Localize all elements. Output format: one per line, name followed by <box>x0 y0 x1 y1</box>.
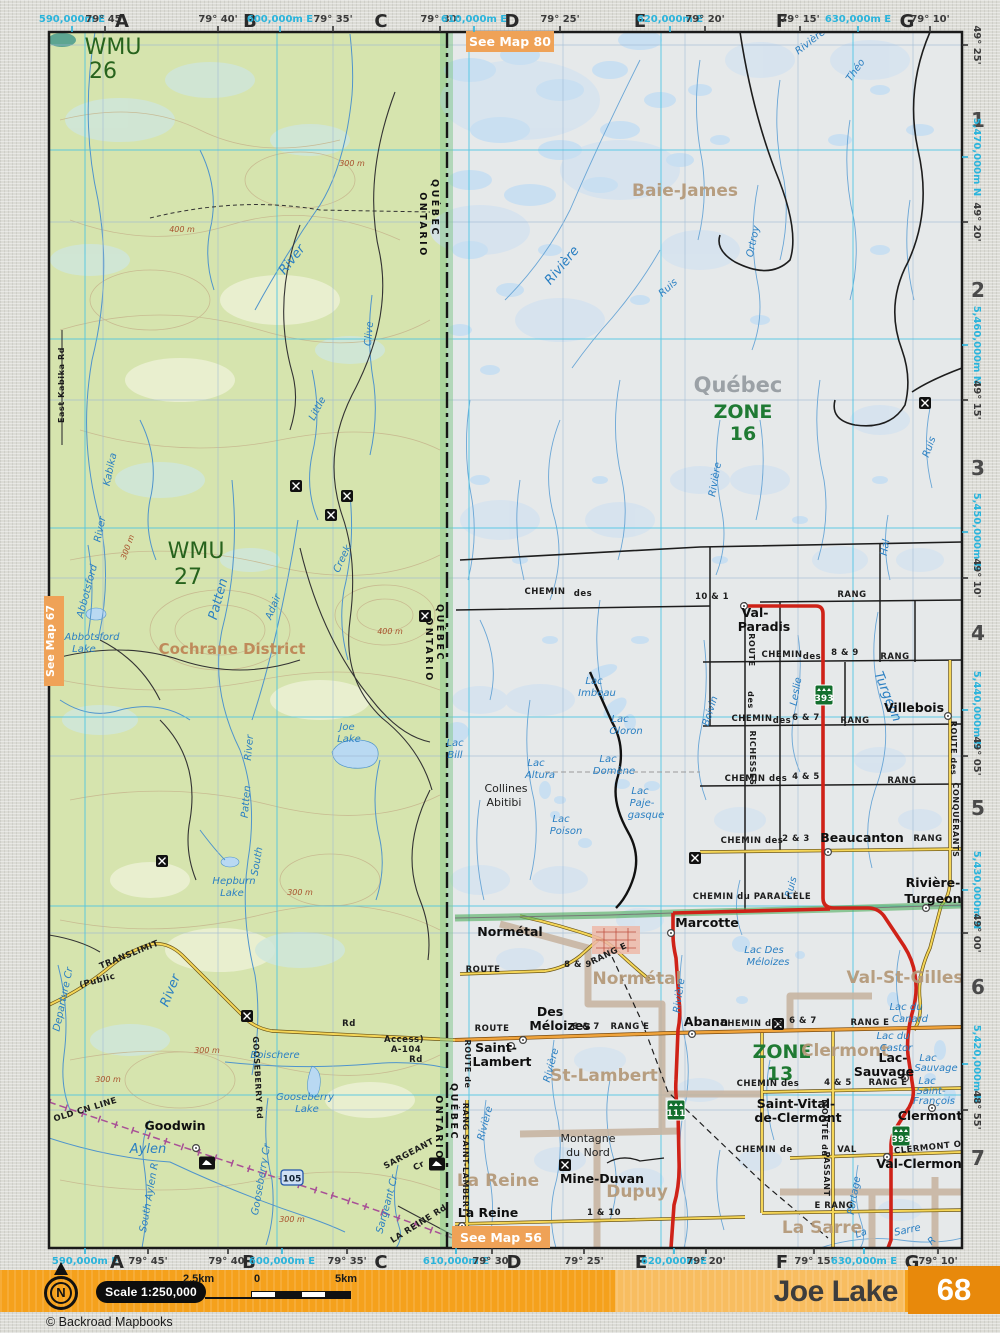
map-label: 6 & 7 <box>792 713 820 723</box>
map-label: Lac <box>631 786 649 797</box>
map-label: 79° 25' <box>564 1256 603 1267</box>
map-label: Turgeon <box>904 891 961 906</box>
map-label: WMU <box>85 35 142 60</box>
map-label: CHEMIN des <box>721 1019 784 1029</box>
map-label: Marcotte <box>675 915 738 930</box>
map-label: des <box>746 691 755 709</box>
map-label: 48° 55' <box>971 1090 982 1129</box>
scale-tick-5: 5km <box>335 1273 357 1285</box>
map-label: Lac- <box>879 1050 908 1065</box>
map-label: Bill <box>447 750 462 761</box>
map-label: ONTARIO <box>423 617 434 683</box>
scale-tick-25: 2.5km <box>183 1273 214 1285</box>
map-label: Normétal <box>477 924 542 939</box>
map-label: Lambert <box>473 1054 532 1069</box>
map-label: RANG E <box>851 1018 890 1028</box>
map-label: C <box>374 11 387 32</box>
map-label: River <box>243 734 256 762</box>
map-label: 49° 00' <box>971 913 982 952</box>
map-label: CONQUÉRANTS <box>951 783 962 858</box>
map-label: A <box>115 11 129 32</box>
map-label: 2 & 3 <box>782 834 810 844</box>
map-label: ROUTE <box>466 965 501 975</box>
map-label: 6 <box>971 975 985 999</box>
map-label: Cochrane District <box>159 640 306 658</box>
map-label: ZONE <box>714 401 773 423</box>
see-map-top: See Map 80 <box>466 31 554 52</box>
map-label: CHEMIN des <box>737 1079 800 1089</box>
map-label: 3 <box>971 456 985 480</box>
map-label: Imbeau <box>578 688 616 699</box>
map-label: Domène <box>593 765 635 777</box>
map-label: Aylen <box>129 1142 166 1157</box>
map-label: Poison <box>550 826 583 837</box>
map-label: gasque <box>628 810 665 821</box>
map-label: 79° 35' <box>313 14 352 25</box>
scale-bar-segment <box>251 1291 276 1298</box>
map-label: MONTÉE du <box>820 1099 831 1156</box>
map-label: Gooseberry <box>276 1092 335 1103</box>
map-label: 26 <box>89 59 117 84</box>
map-label: QUÉBEC <box>429 179 441 237</box>
map-label: Clermont <box>801 1041 889 1061</box>
map-label: QUÉBEC <box>434 604 446 662</box>
map-label: Goodwin <box>144 1118 205 1133</box>
map-label: des <box>803 652 821 662</box>
map-label: 79° 25' <box>540 14 579 25</box>
map-label: 400 m <box>377 627 403 636</box>
map-label: 8 & 9 <box>831 648 859 658</box>
map-label: Lac <box>585 676 603 687</box>
svg-text:393: 393 <box>892 1135 911 1145</box>
map-label: Québec <box>694 373 783 397</box>
map-label: CHEMIN <box>525 587 566 597</box>
map-label: 16 <box>730 423 756 445</box>
map-label: 79° 40' <box>198 14 237 25</box>
scale-bar-segment <box>301 1291 326 1298</box>
map-label: Paje- <box>630 798 655 809</box>
map-label: 7 <box>971 1146 985 1170</box>
map-label: Montagne <box>561 1132 616 1145</box>
map-page: 393111393105 WMU26WMU27Cochrane District… <box>0 0 1000 1333</box>
map-label: QUÉBEC <box>448 1083 460 1141</box>
see-map-left-label: See Map 67 <box>44 605 57 677</box>
see-map-bottom: See Map 56 <box>452 1226 550 1248</box>
map-label: 300 m <box>287 888 313 897</box>
map-label: 49° 25' <box>971 25 982 64</box>
map-label: ROUTE <box>747 633 756 666</box>
see-map-left: See Map 67 <box>44 596 64 686</box>
map-label: Sauvage <box>854 1064 914 1079</box>
map-label: Lac <box>611 714 629 725</box>
copyright: © Backroad Mapbooks <box>46 1315 173 1329</box>
map-label: La Sarre <box>782 1218 862 1238</box>
map-label: 600,000m E <box>247 14 313 25</box>
map-label: 49° 05' <box>971 736 982 775</box>
map-label: CHEMIN <box>732 714 773 724</box>
map-label: 49° 20' <box>971 202 982 241</box>
map-label: RANG SAINT-LAMBERT <box>461 1103 470 1214</box>
map-label: VAL <box>837 1145 857 1155</box>
map-label: Oloron <box>609 726 642 737</box>
map-label: 630,000m E <box>831 1256 897 1267</box>
map-label: Val-Clermont <box>876 1156 968 1171</box>
map-label: des <box>773 716 791 726</box>
map-label: Lake <box>72 644 96 655</box>
map-label: Villebois <box>884 700 944 715</box>
map-label: du Nord <box>566 1146 610 1159</box>
map-label: 49° 10' <box>971 558 982 597</box>
svg-text:111: 111 <box>667 1109 686 1119</box>
map-label: Lake <box>220 888 244 899</box>
map-label: 6 & 7 <box>789 1016 817 1026</box>
map-label: 5,470,000m N <box>971 118 982 197</box>
map-label: 10 & 1 <box>695 592 729 602</box>
map-label: Saint- <box>475 1040 517 1055</box>
map-label: 300 m <box>194 1046 220 1055</box>
map-label: 79° 45' <box>128 1256 167 1267</box>
map-label: 49° 15' <box>971 380 982 419</box>
map-label: East Kabika Rd <box>57 347 66 423</box>
map-label: 6 & 7 <box>572 1022 600 1032</box>
map-label: Canard <box>892 1014 929 1025</box>
map-label: Lac <box>446 738 464 749</box>
compass-letter: N <box>50 1282 72 1304</box>
scale-bar-segment <box>276 1291 301 1298</box>
see-map-top-label: See Map 80 <box>469 34 551 49</box>
map-label: WMU <box>168 539 225 564</box>
map-label: RANG <box>913 834 942 844</box>
map-label: 4 <box>971 621 985 645</box>
map-label: A-104 <box>391 1045 421 1055</box>
map-label: 8 & 9 <box>564 960 592 970</box>
map-label: Lake <box>295 1104 319 1115</box>
map-label: ONTARIO <box>433 1095 444 1161</box>
map-label: 1 & 10 <box>587 1208 621 1218</box>
map-label: Beaucanton <box>820 830 904 845</box>
map-label: RANG <box>840 716 869 726</box>
map-label: Des <box>537 1004 563 1019</box>
map-label: François <box>913 1096 955 1107</box>
map-label: 600,000m E <box>249 1256 315 1267</box>
map-label: Clermont <box>898 1108 963 1123</box>
map-label: CHEMIN des <box>721 836 784 846</box>
north-arrow-icon <box>54 1262 68 1275</box>
map-label: RANG <box>887 776 916 786</box>
map-label: Rd <box>409 1055 423 1065</box>
map-label: Abitibi <box>487 796 522 809</box>
map-label: ROUTE des <box>949 721 958 775</box>
map-label: CHEMIN du PARALLÈLE <box>693 890 811 902</box>
map-label: CHEMIN <box>762 650 803 660</box>
map-label: 5 <box>971 796 985 820</box>
map-label: 79° 10' <box>910 14 949 25</box>
map-label: Lac Des <box>744 945 783 956</box>
map-label: 79° 20' <box>685 14 724 25</box>
map-label: Joe <box>337 722 354 733</box>
map-label: Normétal <box>593 969 682 989</box>
map-label: ROUTE de <box>463 1039 472 1088</box>
map-label: Lac <box>599 754 617 765</box>
svg-text:393: 393 <box>815 694 834 704</box>
map-label: 79° 15' <box>780 14 819 25</box>
map-label: ONTARIO <box>417 192 428 258</box>
map-label: Dupuy <box>606 1182 668 1202</box>
map-label: Val-St-Gilles <box>846 968 963 988</box>
map-label: Boischere <box>250 1050 299 1061</box>
map-label: 300 m <box>279 1215 305 1224</box>
map-label: Rd <box>342 1019 356 1029</box>
page-title: Joe Lake <box>640 1272 898 1312</box>
map-label: des <box>574 589 592 599</box>
map-label: 630,000m E <box>825 14 891 25</box>
map-label: Baie-James <box>632 181 738 201</box>
map-body: 393111393105 WMU26WMU27Cochrane District… <box>48 26 968 1248</box>
scale-bar-segment <box>326 1291 351 1298</box>
map-label: 5,460,000m N <box>971 306 982 385</box>
map-label: 400 m <box>169 225 195 234</box>
map-label: RANG <box>837 590 866 600</box>
map-label: Lac du <box>876 1031 909 1042</box>
map-label: Clive <box>363 321 376 346</box>
map-label: Lake <box>337 734 361 745</box>
map-label: Altura <box>524 770 555 781</box>
compass-icon: N <box>44 1276 78 1310</box>
page-number: 68 <box>908 1266 1000 1314</box>
map-label: 4 & 5 <box>824 1078 852 1088</box>
scale-tick-0: 0 <box>254 1273 260 1285</box>
map-label: Access) <box>384 1035 424 1045</box>
map-label: 2 <box>971 278 985 302</box>
map-label: ROUTE <box>475 1024 510 1034</box>
map-label: 79° 20' <box>686 1256 725 1267</box>
map-label: D <box>505 11 520 32</box>
map-label: 610,000m E <box>441 14 507 25</box>
map-label: RANG E <box>611 1022 650 1032</box>
map-label: Sauvage <box>914 1063 957 1074</box>
margin-top: 590,000m E79° 45'A79° 40'B600,000m E79° … <box>39 11 950 32</box>
map-label: 79° 35' <box>327 1256 366 1267</box>
map-label: 300 m <box>339 159 365 168</box>
map-label: Rivière- <box>906 875 961 890</box>
map-label: PASSANT <box>822 1151 831 1196</box>
map-label: St-Lambert <box>550 1066 658 1086</box>
map-label: CHEMIN des <box>725 774 788 784</box>
map-label: Lac du <box>889 1002 922 1013</box>
map-label: 79° 15' <box>794 1256 833 1267</box>
svg-text:105: 105 <box>283 1175 302 1185</box>
map-label: 27 <box>174 565 202 590</box>
margin-right: 49° 25'15,470,000m N49° 20'25,460,000m N… <box>962 25 985 1170</box>
map-label: CHEMIN de <box>735 1145 792 1155</box>
map-label: Val- <box>742 605 769 620</box>
map-label: RANG E <box>869 1078 908 1088</box>
map-label: Hepburn <box>212 876 255 887</box>
map-label: Abbotsford <box>64 632 121 643</box>
map-label: 300 m <box>95 1075 121 1084</box>
map-label: RANG <box>880 652 909 662</box>
map-label: Paradis <box>738 619 791 634</box>
map-label: Lac <box>552 814 570 825</box>
map-label: Lac <box>527 758 545 769</box>
map-label: Collines <box>484 782 527 795</box>
map-label: 4 & 5 <box>792 772 820 782</box>
map-canvas: 393111393105 WMU26WMU27Cochrane District… <box>0 0 1000 1333</box>
see-map-bottom-label: See Map 56 <box>460 1230 542 1245</box>
map-label: Méloizes <box>746 956 789 968</box>
